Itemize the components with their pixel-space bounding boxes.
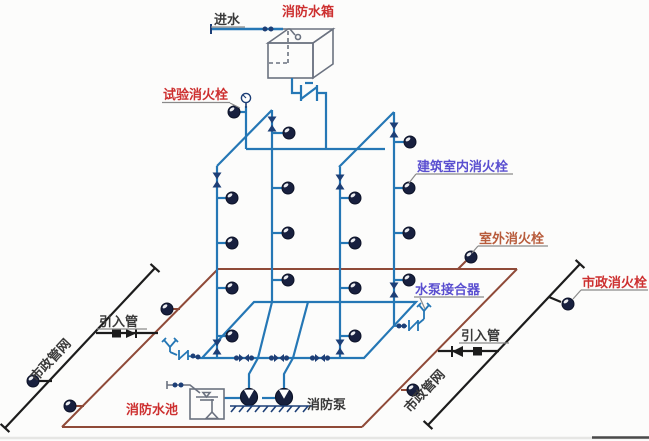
indoor-fire-hydrant-icon [282,182,294,194]
gate-valve-icon [112,329,121,338]
label-underlines [97,27,648,343]
indoor-fire-hydrant-icon [226,192,238,204]
check-valve-icon [179,350,188,360]
union-icon [196,355,201,360]
check-valve-icon [452,346,463,357]
union-icon [397,324,402,329]
hydrant-stub [549,297,561,302]
tank-outlet [292,78,326,149]
fire-protection-diagram: 进水 消防水箱 试验消火栓 建筑室内消火栓 室外消火栓 水泵接合器 市政消火栓 … [0,0,649,441]
label-inlet-pipe-left: 引入管 [99,314,138,329]
pool-tank [190,389,224,419]
indoor-fire-hydrant-icon [349,330,361,342]
test-fire-hydrant-icon [228,106,240,118]
diagram-canvas: 进水 消防水箱 试验消火栓 建筑室内消火栓 室外消火栓 水泵接合器 市政消火栓 … [0,0,649,441]
tank-downpipe [317,93,326,149]
union-icon [269,27,274,32]
outdoor-fire-hydrant-icon [465,251,477,263]
indoor-fire-hydrant-icon [283,127,295,139]
fire-pump-icon [241,389,258,406]
label-inlet-water: 进水 [214,12,241,27]
check-valve-icon [409,320,418,331]
foot-valve-icon [206,412,218,419]
check-valve-set-icon [310,354,330,362]
indoor-fire-hydrant-icon [282,274,294,286]
pump1-discharge-pipe [249,358,258,388]
union-icon [173,383,178,388]
pump-foundation [230,406,312,412]
pump-discharge-branch [258,302,272,358]
union-icon [263,27,268,32]
roof-slope-pipe [339,112,394,167]
indoor-fire-hydrant-icon [403,274,415,286]
union-icon [179,383,184,388]
gate-valve-icon [473,347,482,356]
pressure-gauge-icon [241,93,250,108]
fire-pump-icon [276,389,293,406]
label-indoor-fire-hydrant: 建筑室内消火栓 [417,159,508,174]
pump2-discharge-pipe [284,358,293,388]
outdoor-fire-hydrant-icon [64,400,76,412]
indoor-fire-hydrant-icon [349,237,361,249]
label-municipal-fire-hydrant: 市政消火栓 [582,275,647,290]
label-outdoor-fire-hydrant: 室外消火栓 [479,231,544,246]
building-piping [202,106,416,398]
float-valve-icon [296,35,301,40]
check-valve-icon [301,83,317,101]
roof-slope-pipe [217,110,272,166]
outdoor-fire-hydrant-icon [161,303,173,315]
indoor-fire-hydrant-icon [403,227,415,239]
label-inlet-pipe-right: 引入管 [461,328,500,343]
label-test-fire-hydrant: 试验消火栓 [163,87,228,102]
municipal-fire-hydrant-icon [562,298,574,310]
tank-right-face [313,29,333,78]
check-valve-set-icon [234,354,254,362]
fire-water-tank [268,29,333,78]
label-fire-pump: 消防泵 [307,397,346,412]
indoor-fire-hydrant-icon [349,282,361,294]
indoor-fire-hydrant-icon [282,227,294,239]
indoor-fire-hydrant-icon [403,182,415,194]
indoor-fire-hydrant-icon [349,192,361,204]
indoor-fire-hydrant-icon [226,237,238,249]
union-icon [402,324,407,329]
hydrant-stub [458,261,466,269]
check-valve-set-icon [269,354,289,362]
label-pump-adapter: 水泵接合器 [415,282,481,297]
indoor-fire-hydrant-icon [404,136,416,148]
pool-fill-pipe [167,385,200,393]
check-valve-icon [126,329,136,338]
tank-outlet-pipe [292,78,300,93]
label-municipal-network-left: 市政管网 [27,336,73,384]
label-fire-water-tank: 消防水箱 [282,4,334,19]
indoor-fire-hydrant-icon [226,330,238,342]
pump-discharge-branch [293,302,308,358]
label-fire-pool: 消防水池 [126,402,178,417]
union-icon [191,354,196,359]
indoor-fire-hydrant-icon [226,282,238,294]
tank-front-face [268,43,313,78]
